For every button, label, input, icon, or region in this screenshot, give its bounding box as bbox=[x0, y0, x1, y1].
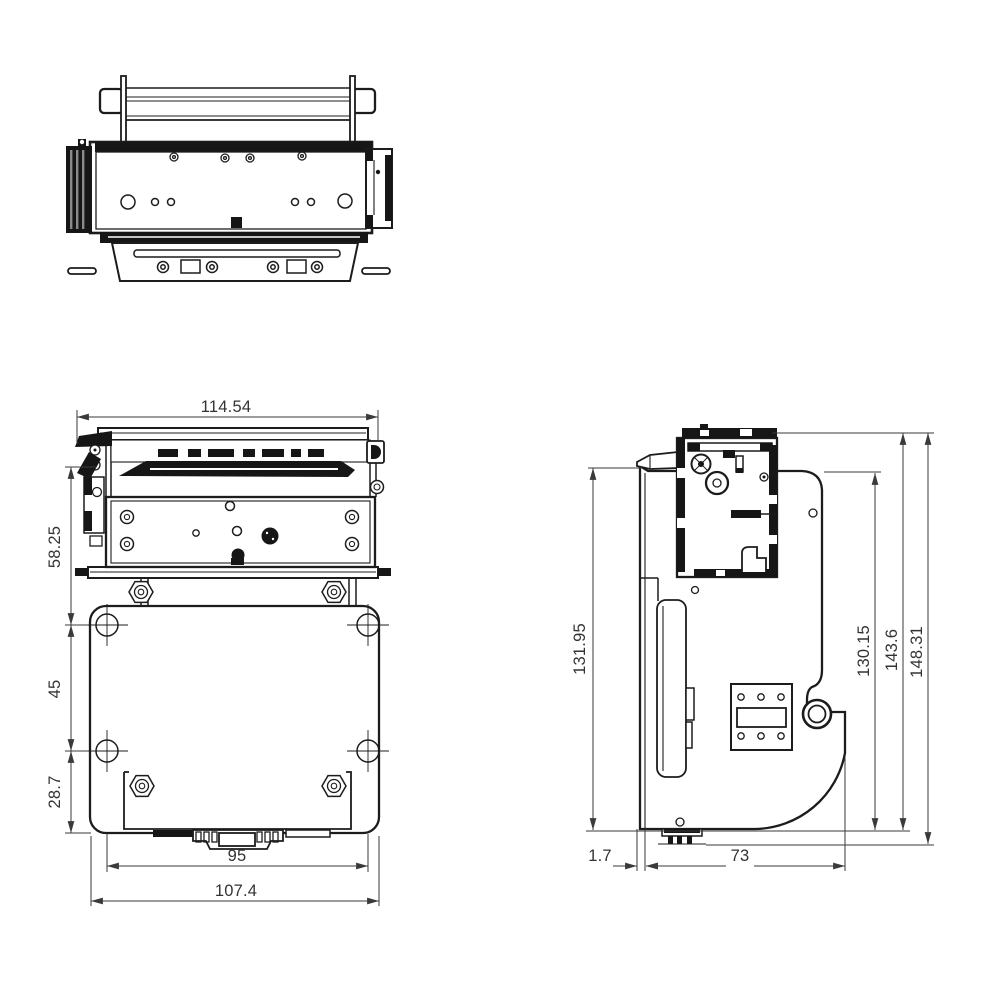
mounting-plate bbox=[90, 606, 379, 833]
paper-roller bbox=[100, 76, 375, 145]
top-view-base bbox=[68, 232, 390, 281]
side-wedge bbox=[637, 452, 678, 469]
side-view: 131.95 130.15 143.6 148.31 1.7 73 bbox=[571, 424, 934, 871]
dim-plate-offset: 1.7 bbox=[588, 847, 612, 865]
front-view-drawing bbox=[75, 428, 391, 849]
dim-bracket-height: 131.95 bbox=[571, 623, 589, 675]
right-bracket bbox=[366, 149, 392, 228]
left-gear-block bbox=[66, 139, 92, 233]
side-mechanism bbox=[677, 424, 777, 577]
guide-ring bbox=[803, 700, 831, 728]
side-connector-block bbox=[731, 684, 792, 750]
paper-channel bbox=[657, 600, 686, 777]
dim-upper-height: 58.25 bbox=[46, 526, 64, 568]
front-view: 114.54 58.25 45 28.7 95 107.4 bbox=[46, 398, 391, 906]
dim-hole-spacing-h: 95 bbox=[228, 847, 247, 865]
top-view-body bbox=[90, 142, 372, 233]
dim-plate-width: 107.4 bbox=[215, 882, 257, 900]
hex-bolts-upper bbox=[129, 582, 346, 603]
dim-body-height: 143.6 bbox=[883, 629, 901, 671]
printer-mechanism-drawing: 114.54 58.25 45 28.7 95 107.4 bbox=[0, 0, 1000, 1000]
top-view bbox=[66, 76, 392, 281]
dim-plate-height: 130.15 bbox=[855, 625, 873, 677]
technical-drawing-page: 114.54 58.25 45 28.7 95 107.4 bbox=[0, 0, 1000, 1000]
dim-hole-spacing-v: 45 bbox=[46, 680, 64, 699]
dim-overall-height: 148.31 bbox=[908, 626, 926, 678]
dim-overall-width: 114.54 bbox=[201, 398, 251, 416]
side-view-drawing bbox=[637, 424, 845, 844]
dim-base-depth: 73 bbox=[731, 847, 750, 865]
dim-lower-height: 28.7 bbox=[46, 776, 64, 809]
printer-frame bbox=[106, 497, 375, 567]
